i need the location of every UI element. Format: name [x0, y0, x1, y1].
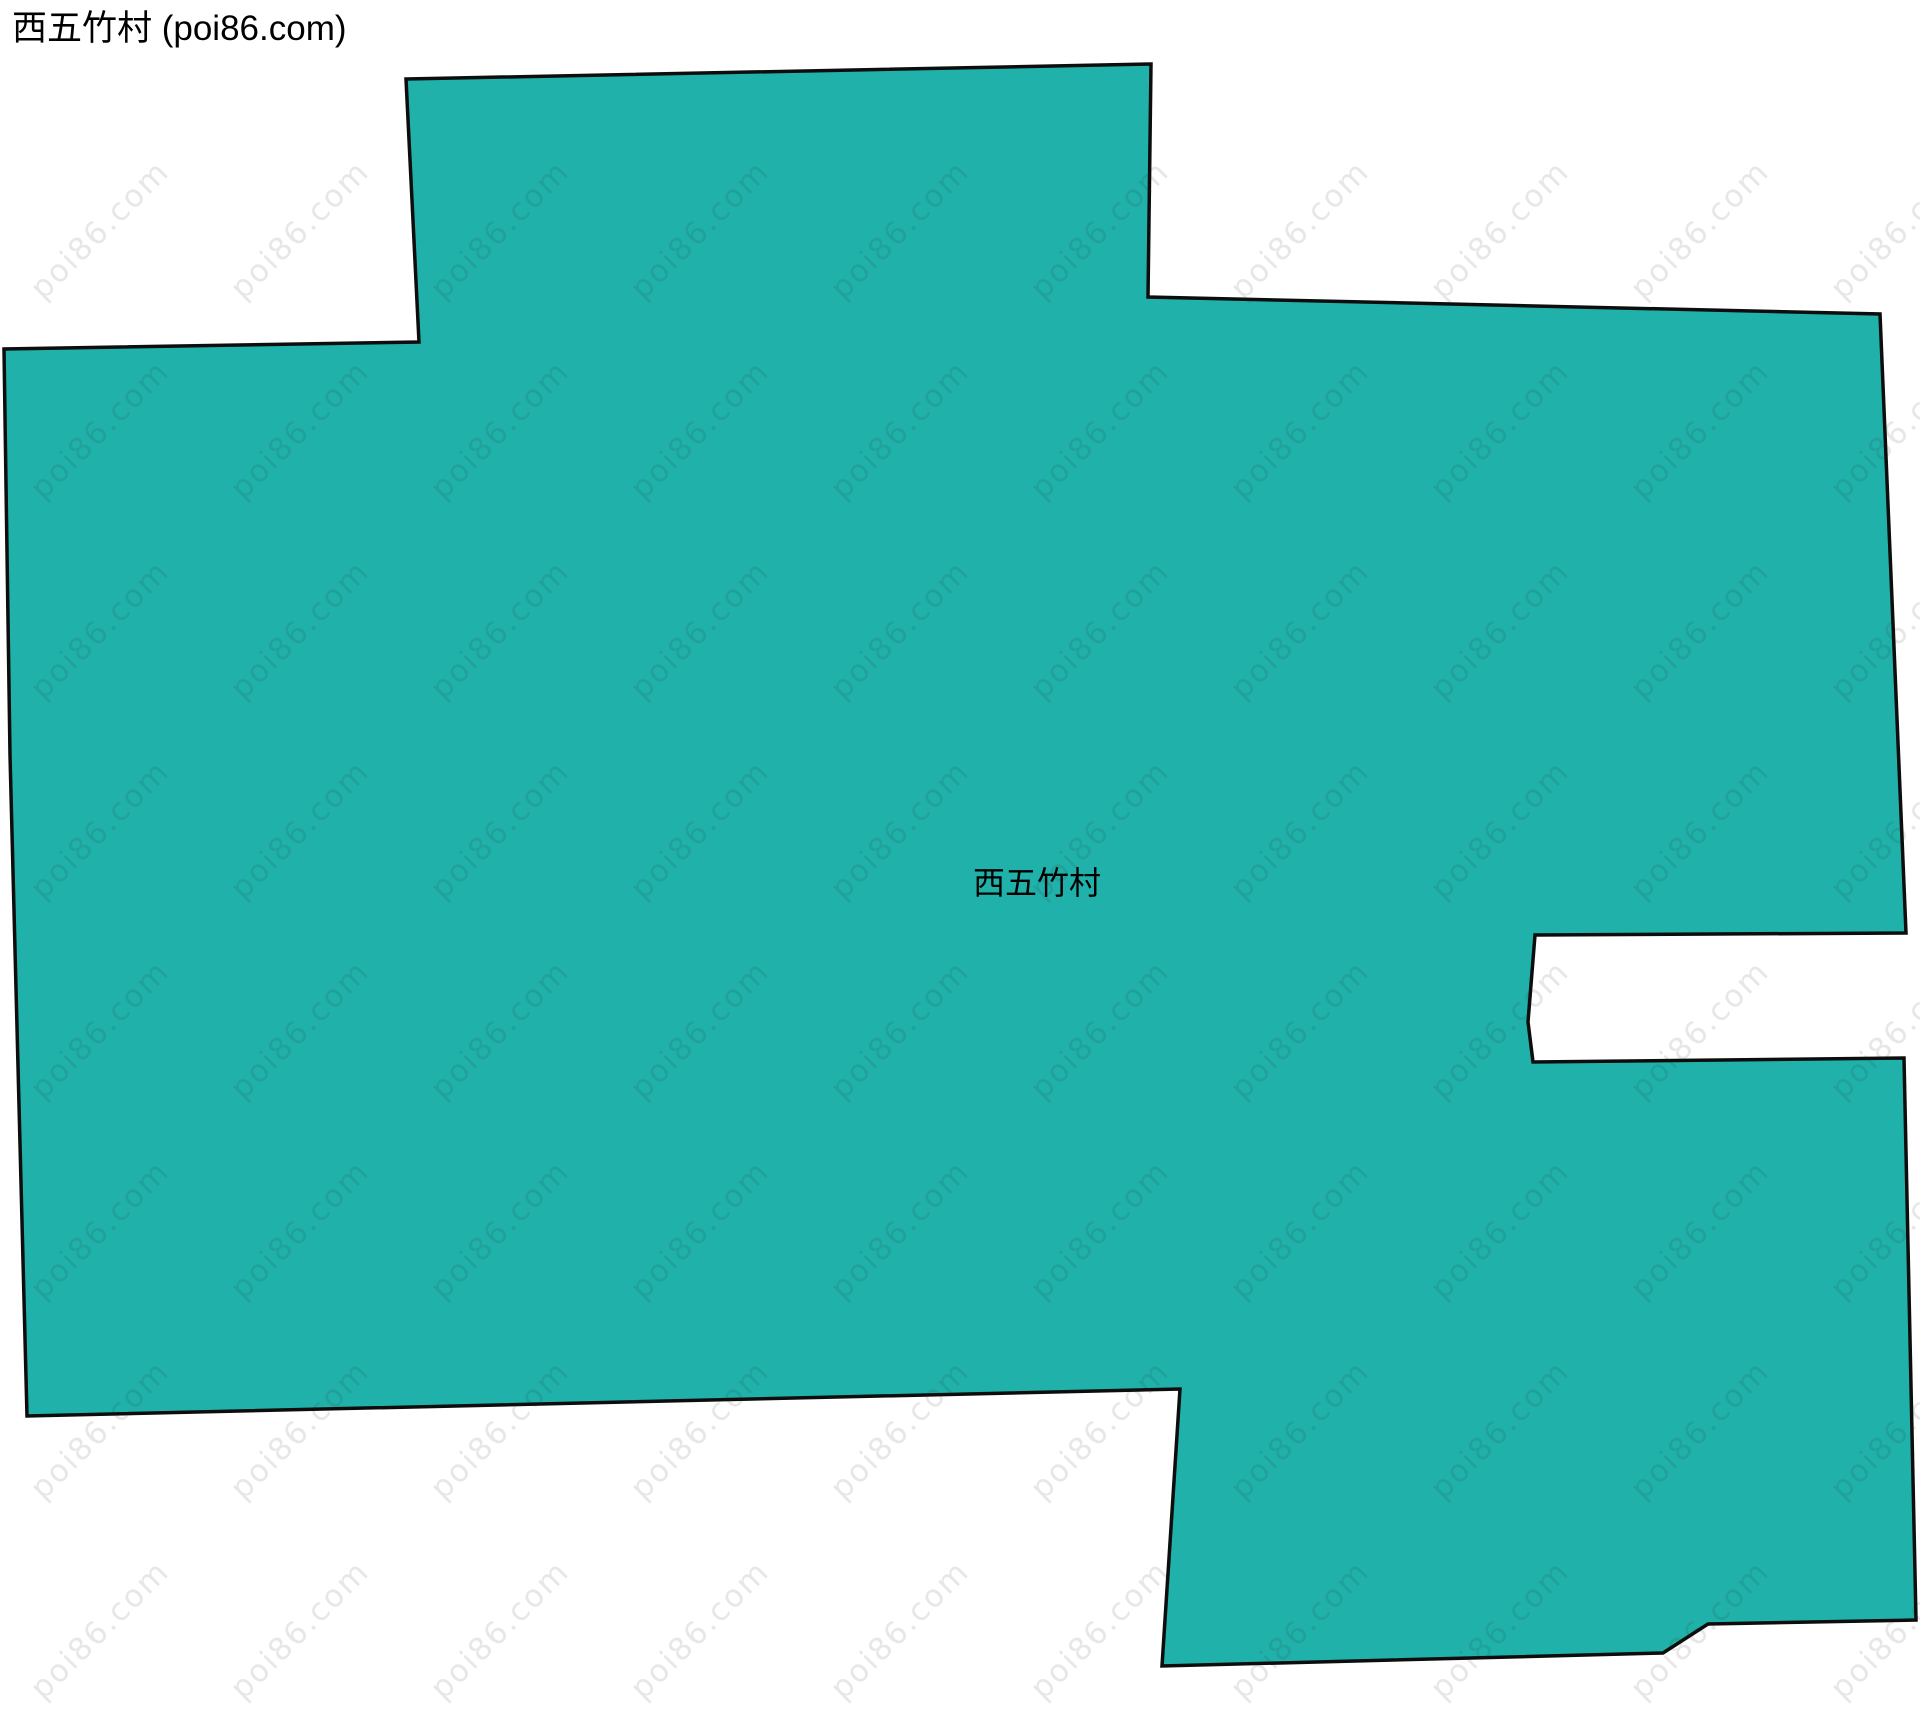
region-label: 西五竹村	[973, 858, 1101, 904]
region-polygon	[4, 64, 1916, 1666]
map-canvas: poi86.compoi86.compoi86.compoi86.compoi8…	[0, 0, 1920, 1731]
page-title: 西五竹村 (poi86.com)	[12, 6, 347, 52]
boundary-map	[0, 0, 1920, 1731]
